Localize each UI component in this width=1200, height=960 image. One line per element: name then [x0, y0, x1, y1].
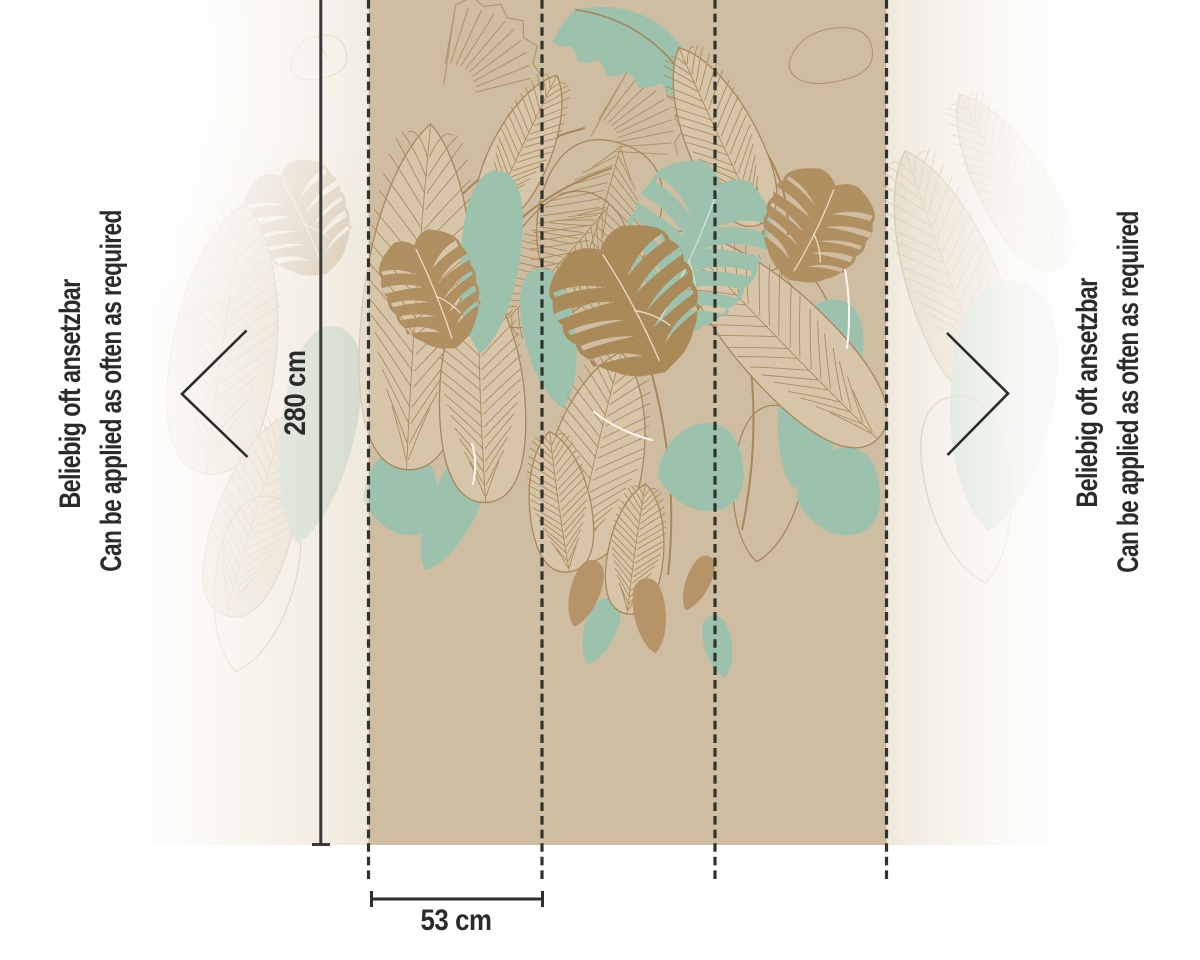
- svg-text:Can be applied as often as req: Can be applied as often as required: [94, 210, 128, 571]
- svg-text:Can be applied as often as req: Can be applied as often as required: [1111, 211, 1145, 572]
- svg-text:53 cm: 53 cm: [421, 903, 492, 936]
- svg-text:Beliebig oft ansetzbar: Beliebig oft ansetzbar: [1070, 277, 1103, 507]
- svg-text:280 cm: 280 cm: [278, 351, 311, 436]
- svg-text:Beliebig oft ansetzbar: Beliebig oft ansetzbar: [53, 278, 86, 508]
